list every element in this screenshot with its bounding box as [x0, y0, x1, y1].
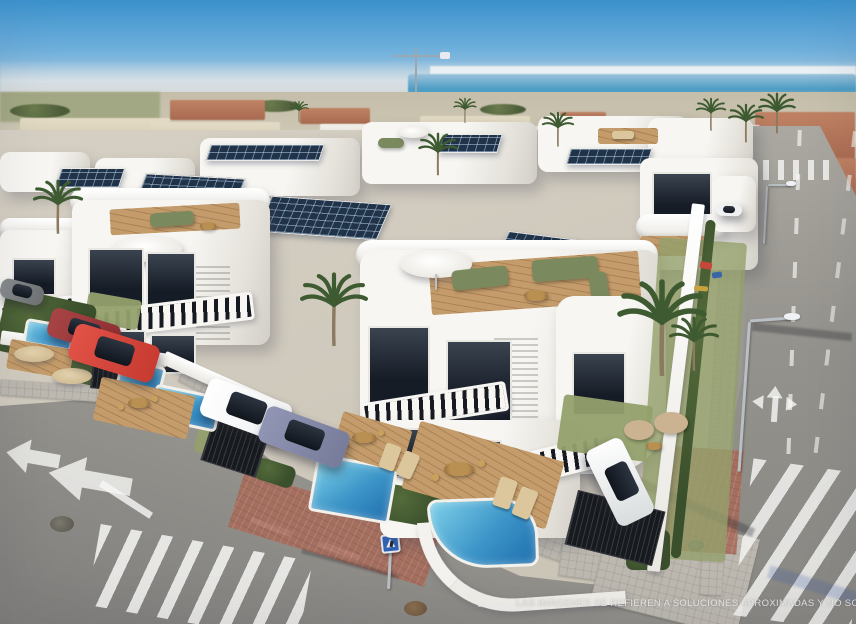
villa-development-render: LAS IMÁGENES SE REFIEREN A SOLUCIONES AP…	[0, 0, 856, 624]
solar-panel-array	[566, 148, 653, 165]
dining-table	[128, 398, 150, 408]
terracotta-houses	[300, 108, 370, 124]
construction-crane-counterweight	[440, 52, 450, 59]
manhole-cover	[404, 601, 427, 616]
arrow-head-left	[752, 394, 764, 409]
beige-parasol	[52, 368, 92, 384]
garden-lounge-chair	[654, 412, 688, 434]
rooftop-table	[524, 290, 548, 301]
chair	[152, 396, 158, 402]
palm-tree	[694, 90, 728, 140]
chair	[432, 474, 439, 481]
rooftop-sofa	[378, 138, 404, 148]
tree-line	[480, 104, 526, 115]
manhole-cover	[50, 516, 74, 532]
chair	[118, 404, 124, 410]
palm-tree	[452, 92, 478, 130]
street-lamp-head	[784, 313, 800, 320]
arrow-head-up	[767, 385, 784, 398]
chair	[478, 460, 485, 467]
arrow-head-right	[786, 397, 798, 412]
parasol-pole	[435, 274, 437, 290]
street-lamp-head	[786, 181, 796, 186]
palm-tree	[540, 104, 576, 156]
solar-panel-array	[205, 144, 325, 161]
palm-tree	[30, 168, 86, 248]
dining-table	[352, 432, 376, 443]
garden-table	[646, 442, 662, 450]
road-trident-arrow	[751, 384, 800, 427]
palm-tree	[416, 124, 460, 186]
beige-parasol	[14, 346, 54, 362]
car-distant-white	[716, 204, 742, 217]
palm-tree	[296, 252, 372, 370]
watermark-disclaimer: LAS IMÁGENES SE REFIEREN A SOLUCIONES AP…	[516, 598, 856, 609]
rooftop-lounger	[612, 131, 634, 139]
palm-tree	[288, 96, 310, 128]
dining-table	[444, 462, 474, 476]
terracotta-houses	[170, 100, 265, 120]
garden-lounge-chair	[624, 420, 654, 440]
palm-tree	[726, 96, 766, 152]
villa-window	[368, 326, 430, 404]
chair	[378, 430, 384, 436]
arrow-stem	[771, 396, 779, 422]
rooftop-table	[200, 222, 216, 230]
palm-tree	[666, 300, 722, 390]
tree-line	[10, 104, 70, 118]
zebra-crosswalk-distant	[748, 160, 832, 180]
